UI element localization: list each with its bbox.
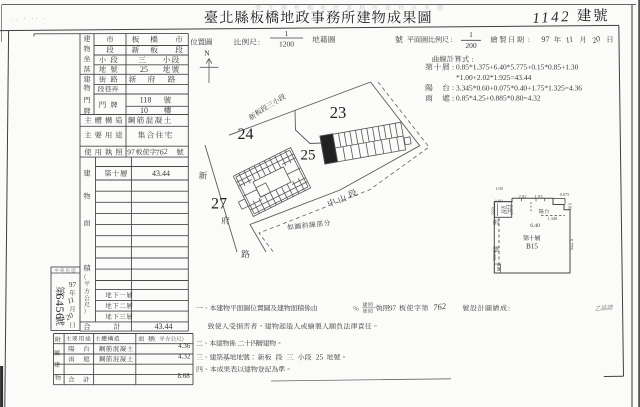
svg-text:中 華 民 國: 中 華 民 國 [54, 267, 76, 274]
svg-text:0.85: 0.85 [491, 207, 496, 214]
svg-text::: : [452, 94, 454, 103]
svg-text:97: 97 [389, 305, 397, 313]
svg-text:2.02: 2.02 [518, 194, 527, 199]
svg-text:4.36: 4.36 [178, 342, 191, 350]
svg-text:0.85*4.25+0.885*0.80=4.32: 0.85*4.25+0.885*0.80=4.32 [456, 94, 541, 103]
svg-text:97: 97 [127, 148, 135, 157]
svg-text:10: 10 [140, 106, 148, 115]
svg-text:4.32: 4.32 [178, 352, 191, 360]
svg-text:1: 1 [469, 30, 473, 39]
svg-text:.. ‧ ‧‧ ‧: .. ‧ ‧‧ ‧ [12, 15, 48, 23]
svg-text::: : [451, 36, 453, 44]
svg-text:1.00: 1.00 [495, 198, 503, 203]
svg-text:6456: 6456 [53, 294, 67, 320]
svg-text:5.775: 5.775 [568, 239, 573, 251]
svg-text:0.80: 0.80 [567, 203, 572, 210]
svg-text:0.075: 0.075 [560, 192, 569, 197]
svg-text:8.68: 8.68 [177, 372, 190, 380]
svg-text:6.40: 6.40 [530, 223, 540, 229]
svg-text:762: 762 [155, 147, 168, 158]
svg-text:25: 25 [316, 353, 324, 362]
svg-text:43.44: 43.44 [155, 322, 173, 331]
svg-text:1142: 1142 [532, 9, 572, 27]
svg-text:23: 23 [330, 103, 347, 122]
svg-text:25: 25 [140, 65, 148, 74]
svg-text:B15: B15 [526, 242, 538, 250]
svg-text:0.40: 0.40 [503, 206, 508, 213]
svg-text:1: 1 [285, 29, 289, 38]
svg-text:1.93: 1.93 [534, 194, 543, 199]
svg-text::: : [452, 83, 454, 92]
svg-text:2.125: 2.125 [509, 205, 514, 214]
svg-text::: : [452, 63, 454, 72]
svg-text:25: 25 [301, 148, 316, 164]
svg-text:0.885: 0.885 [492, 251, 497, 260]
svg-text:200: 200 [465, 41, 477, 50]
svg-text::: : [508, 305, 510, 313]
svg-text:0.85*1.375+6.40*5.775+0.15*0.8: 0.85*1.375+6.40*5.775+0.15*0.85+1.30 [456, 63, 579, 72]
svg-text:1200: 1200 [279, 40, 294, 49]
svg-text::: : [258, 39, 260, 47]
svg-text:97: 97 [69, 280, 77, 289]
svg-text::: : [528, 36, 530, 44]
svg-text:3.345*0.60+0.075*0.40+1.75*1.3: 3.345*0.60+0.075*0.40+1.75*1.325=4.36 [456, 83, 582, 92]
svg-text:0.85: 0.85 [496, 264, 501, 271]
svg-text:1.00: 1.00 [495, 186, 503, 191]
svg-text:*1.00+2.02*1.925=43.44: *1.00+2.02*1.925=43.44 [456, 73, 532, 82]
svg-text:118: 118 [140, 96, 152, 105]
svg-text:1.340: 1.340 [548, 216, 557, 221]
svg-text:97: 97 [541, 35, 549, 44]
svg-text:762: 762 [433, 301, 448, 313]
svg-text:N: N [204, 49, 210, 58]
svg-text:43.44: 43.44 [152, 169, 170, 178]
